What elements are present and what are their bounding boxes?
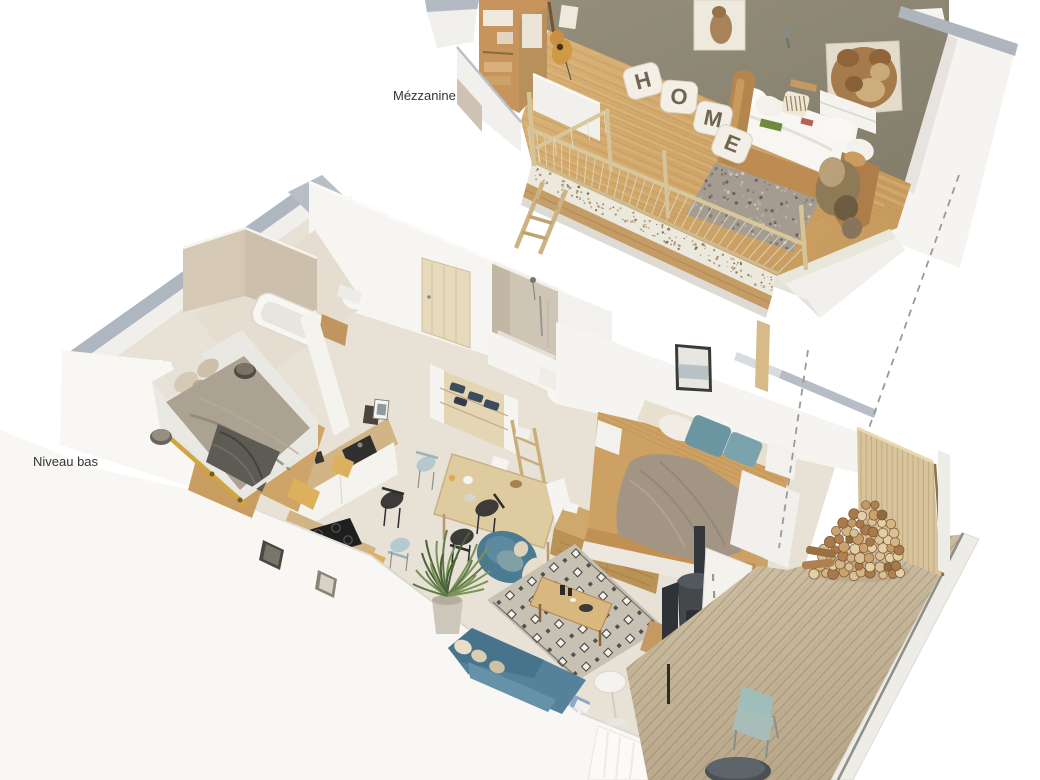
svg-text:O: O — [669, 83, 688, 109]
svg-text:Niveau bas: Niveau bas — [33, 454, 99, 469]
svg-text:Mézzanine: Mézzanine — [393, 88, 456, 103]
